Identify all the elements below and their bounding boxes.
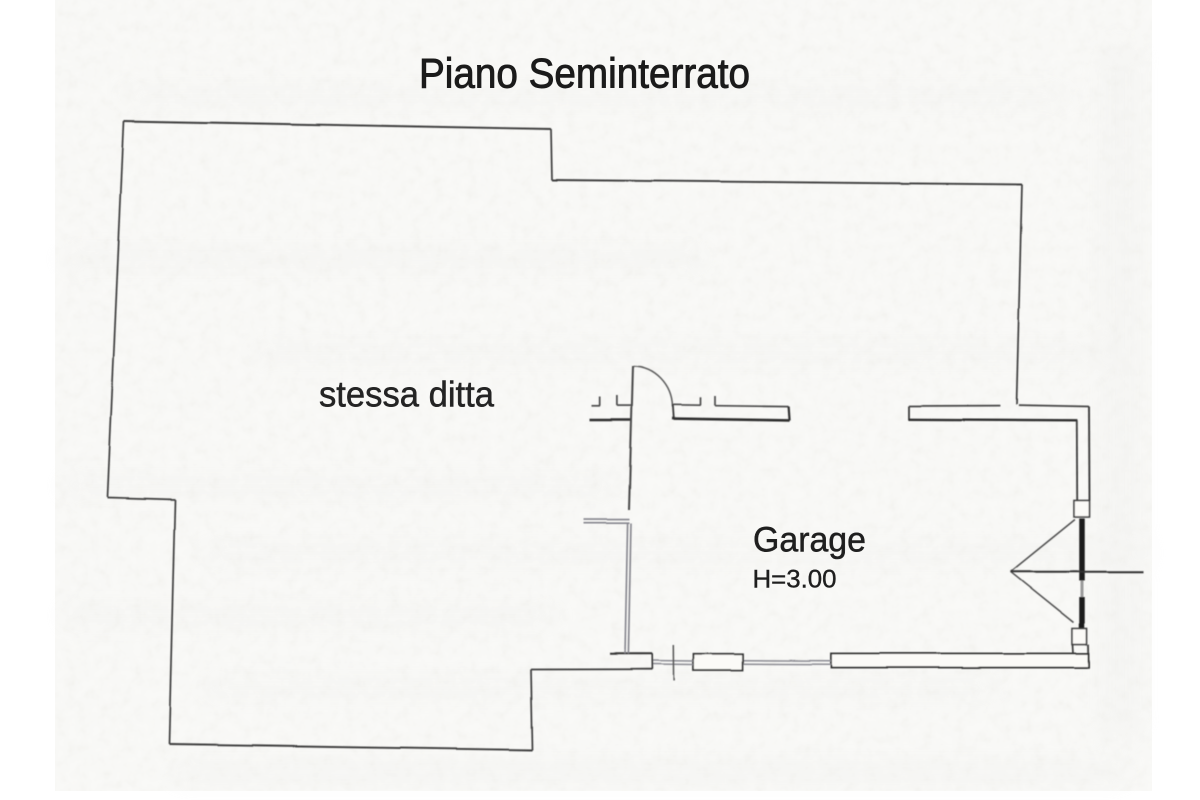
svg-text:Garage: Garage [753, 520, 866, 559]
svg-text:stessa ditta: stessa ditta [319, 373, 495, 414]
svg-text:H=3.00: H=3.00 [753, 566, 837, 594]
svg-text:Piano Seminterrato: Piano Seminterrato [419, 50, 750, 97]
